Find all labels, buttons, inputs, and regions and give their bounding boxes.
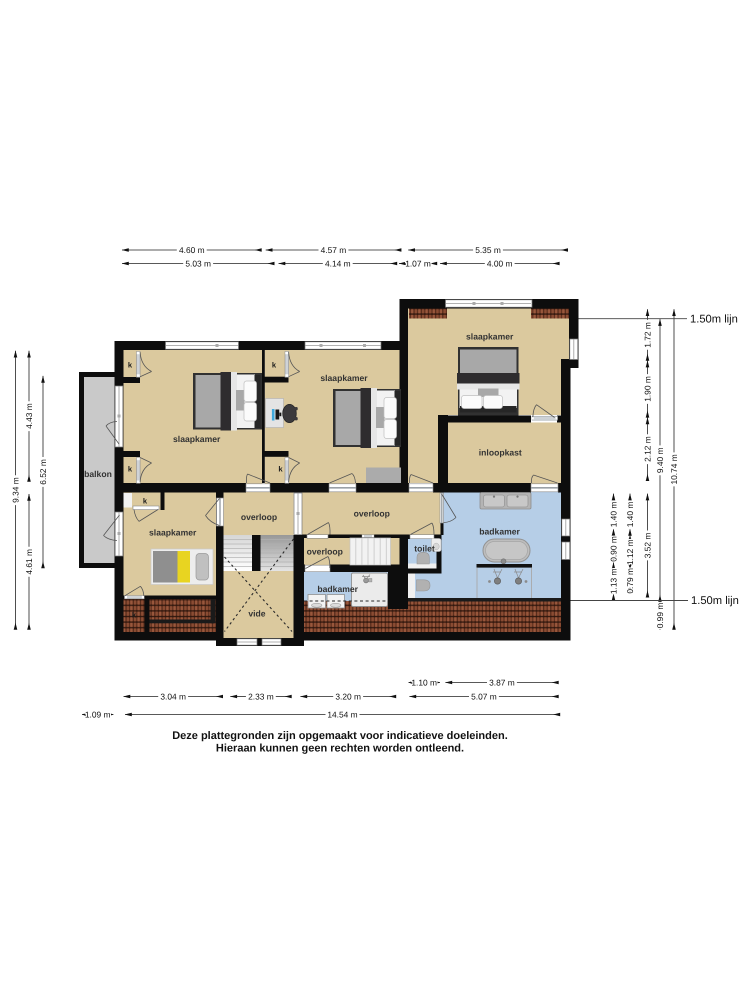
svg-text:1.13 m: 1.13 m (608, 568, 618, 594)
svg-text:overloop: overloop (354, 508, 390, 518)
svg-text:toilet: toilet (414, 543, 435, 553)
svg-text:4.57 m: 4.57 m (321, 245, 347, 255)
svg-text:badkamer: badkamer (317, 584, 358, 594)
svg-text:10.74 m: 10.74 m (669, 454, 679, 484)
svg-text:balkon: balkon (84, 469, 112, 479)
svg-text:Hieraan kunnen geen rechten wo: Hieraan kunnen geen rechten worden ontle… (216, 743, 464, 755)
svg-text:2.33 m: 2.33 m (248, 691, 274, 701)
svg-text:1.09 m: 1.09 m (85, 709, 111, 719)
svg-text:5.03 m: 5.03 m (185, 258, 211, 268)
svg-text:badkamer: badkamer (479, 527, 520, 537)
svg-text:6.52 m: 6.52 m (38, 459, 48, 485)
svg-text:5.35 m: 5.35 m (475, 245, 501, 255)
svg-text:0.90 m: 0.90 m (608, 536, 618, 562)
svg-text:overloop: overloop (307, 547, 343, 557)
svg-text:5.07 m: 5.07 m (471, 691, 497, 701)
svg-text:4.61 m: 4.61 m (24, 549, 34, 575)
svg-text:1.40 m: 1.40 m (608, 502, 618, 528)
svg-text:3.20 m: 3.20 m (335, 691, 361, 701)
svg-text:9.40 m: 9.40 m (655, 447, 665, 473)
svg-text:1.12 m: 1.12 m (625, 539, 635, 565)
svg-text:slaapkamer: slaapkamer (173, 434, 221, 444)
svg-text:2.12 m: 2.12 m (642, 436, 652, 462)
svg-text:4.14 m: 4.14 m (325, 258, 351, 268)
svg-text:1.40 m: 1.40 m (625, 502, 635, 528)
svg-text:1.72 m: 1.72 m (642, 322, 652, 348)
svg-text:vide: vide (248, 609, 265, 619)
svg-text:1.50m lijn: 1.50m lijn (691, 595, 739, 607)
svg-text:4.43 m: 4.43 m (24, 403, 34, 429)
svg-text:overloop: overloop (241, 512, 277, 522)
svg-text:14.54 m: 14.54 m (327, 709, 357, 719)
svg-text:1.10 m: 1.10 m (411, 677, 437, 687)
svg-text:0.99 m: 0.99 m (655, 603, 665, 629)
svg-text:3.87 m: 3.87 m (489, 677, 515, 687)
svg-text:inloopkast: inloopkast (479, 448, 522, 458)
svg-text:1.07 m: 1.07 m (405, 258, 431, 268)
svg-text:3.04 m: 3.04 m (160, 691, 186, 701)
svg-text:0.79 m: 0.79 m (625, 568, 635, 594)
svg-text:slaapkamer: slaapkamer (466, 331, 514, 341)
svg-text:slaapkamer: slaapkamer (149, 528, 197, 538)
svg-text:1.90 m: 1.90 m (642, 376, 652, 402)
svg-text:3.52 m: 3.52 m (642, 533, 652, 559)
svg-text:1.50m lijn: 1.50m lijn (690, 313, 738, 325)
svg-text:slaapkamer: slaapkamer (320, 373, 368, 383)
svg-text:9.34 m: 9.34 m (10, 477, 20, 503)
svg-text:4.60 m: 4.60 m (179, 245, 205, 255)
svg-text:Deze plattegronden zijn opgema: Deze plattegronden zijn opgemaakt voor i… (172, 730, 508, 742)
svg-text:4.00 m: 4.00 m (487, 258, 513, 268)
